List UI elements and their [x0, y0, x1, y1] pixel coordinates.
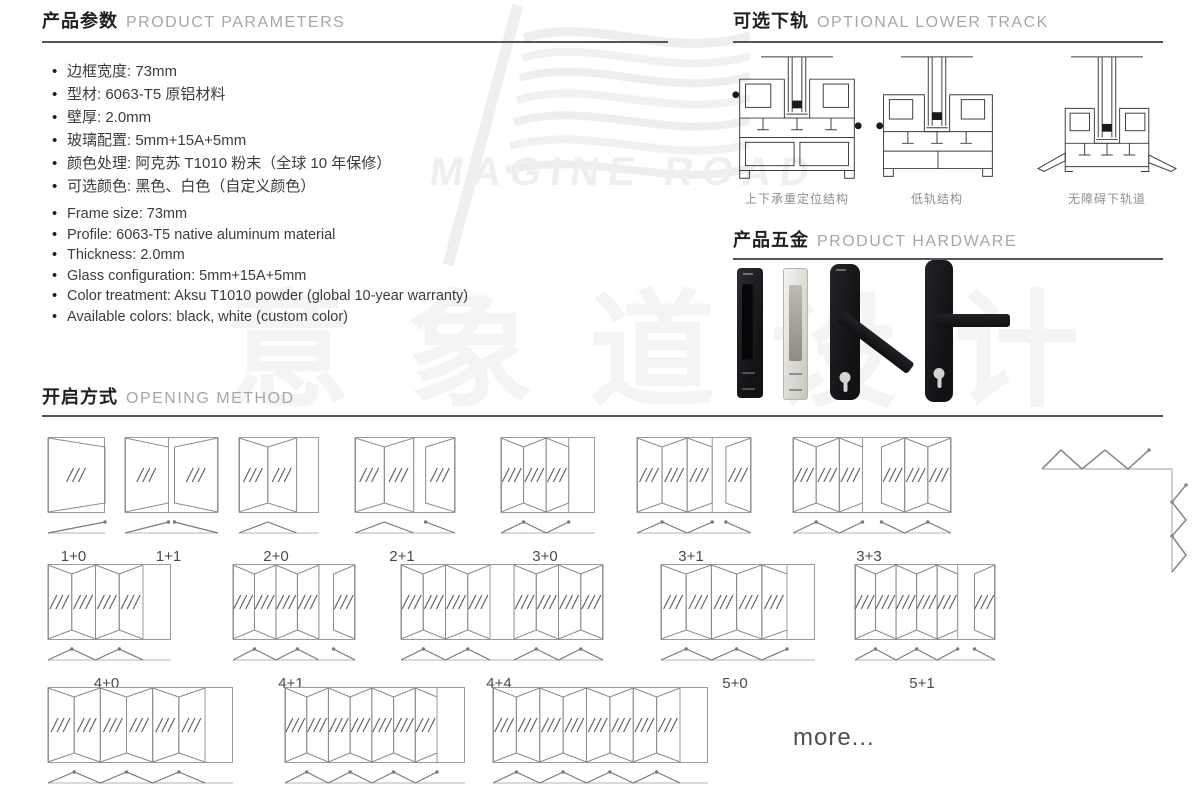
- handle-plate: [925, 260, 953, 402]
- fold-config-figure: 4+4: [398, 564, 600, 692]
- handle-detail-line: [789, 389, 802, 391]
- fold-config-diagram: [122, 437, 221, 541]
- rule-opening: [42, 415, 1163, 417]
- lower-track-title-en: OPTIONAL LOWER TRACK: [817, 14, 1049, 31]
- flush-pull-handle-silver: [783, 268, 808, 400]
- fold-config-figure: 2+1: [352, 437, 452, 565]
- spec-item-cn: 壁厚: 2.0mm: [52, 106, 391, 129]
- fold-config-label: 3+0: [498, 548, 592, 565]
- spec-item-en: Frame size: 73mm: [52, 204, 468, 225]
- track-diagram-low-track: [864, 52, 1010, 188]
- fold-config-diagram: [352, 437, 458, 541]
- fold-config-figure: 1+0: [45, 437, 102, 565]
- track-label: 低轨结构: [862, 190, 1012, 207]
- spec-item-cn: 可选颜色: 黑色、白色（自定义颜色）: [52, 175, 391, 198]
- spec-item-cn: 玻璃配置: 5mm+15A+5mm: [52, 129, 391, 152]
- rule-lower-track: [733, 41, 1163, 43]
- fold-config-diagram: [658, 564, 818, 668]
- fold-config-diagram: [282, 687, 468, 791]
- fold-config-diagram: [852, 564, 998, 668]
- track-figure: 无障碍下轨道: [1032, 52, 1182, 207]
- fold-config-figure: 4+0: [45, 564, 168, 692]
- fold-config-figure: 3+3: [790, 437, 948, 565]
- section-heading-lower-track: 可选下轨OPTIONAL LOWER TRACK: [733, 7, 1049, 33]
- fold-config-diagram: [634, 437, 754, 541]
- parameters-title-cn: 产品参数: [42, 11, 118, 31]
- lower-track-title-cn: 可选下轨: [733, 11, 809, 31]
- spec-item-cn: 型材: 6063-T5 原铝材料: [52, 83, 391, 106]
- track-label: 无障碍下轨道: [1032, 190, 1182, 207]
- spec-list-cn: 边框宽度: 73mm型材: 6063-T5 原铝材料壁厚: 2.0mm玻璃配置:…: [52, 60, 391, 198]
- spec-item-cn: 颜色处理: 阿克苏 T1010 粉末（全球 10 年保修）: [52, 152, 391, 175]
- fold-config-label: 3+1: [634, 548, 748, 565]
- fold-config-figure: 6+0: [45, 687, 230, 800]
- fold-config-figure: 5+1: [852, 564, 992, 692]
- fold-config-label: 1+1: [122, 548, 215, 565]
- handle-brand-mark: [836, 269, 846, 271]
- handle-groove: [789, 285, 802, 361]
- spec-item-en: Available colors: black, white (custom c…: [52, 307, 468, 328]
- handle-detail-line: [742, 388, 755, 390]
- parameters-title-en: PRODUCT PARAMETERS: [126, 14, 345, 31]
- hardware-title-en: PRODUCT HARDWARE: [817, 233, 1017, 250]
- fold-config-diagram: [236, 437, 322, 541]
- fold-config-figure: 3+0: [498, 437, 592, 565]
- rule-parameters: [42, 41, 668, 43]
- hardware-title-cn: 产品五金: [733, 230, 809, 250]
- section-heading-hardware: 产品五金PRODUCT HARDWARE: [733, 226, 1017, 252]
- fold-config-diagram: [45, 437, 108, 541]
- fold-config-diagram: [790, 437, 954, 541]
- spec-item-en: Profile: 6063-T5 native aluminum materia…: [52, 225, 468, 246]
- track-figure: 上下承重定位结构: [722, 52, 872, 207]
- fold-config-label: 2+0: [236, 548, 316, 565]
- fold-config-label: 5+1: [852, 675, 992, 692]
- fold-config-diagram: [45, 687, 236, 791]
- spec-item-en: Color treatment: Aksu T1010 powder (glob…: [52, 286, 468, 307]
- fold-config-figure: 7+0: [282, 687, 462, 800]
- hardware-figure: [733, 258, 1023, 404]
- fold-config-figure: 1+1: [122, 437, 215, 565]
- keyhole: [840, 372, 851, 383]
- opening-title-cn: 开启方式: [42, 387, 118, 407]
- fold-config-diagram: [45, 564, 174, 668]
- handle-groove: [742, 284, 755, 360]
- fold-config-diagram: [398, 564, 606, 668]
- track-diagram-load-bearing: [724, 52, 870, 188]
- lever-bar: [936, 314, 1010, 327]
- track-diagram-barrier-free: [1034, 52, 1180, 188]
- section-heading-opening: 开启方式OPENING METHOD: [42, 383, 295, 409]
- track-label: 上下承重定位结构: [722, 190, 872, 207]
- catalog-page: MAGINE ROAD 意象道设计 产品参数PRODUCT PARAMETERS…: [0, 0, 1200, 800]
- spec-item-en: Thickness: 2.0mm: [52, 245, 468, 266]
- more-label: more...: [793, 724, 875, 752]
- handle-detail-line: [742, 372, 755, 374]
- section-heading-parameters: 产品参数PRODUCT PARAMETERS: [42, 7, 345, 33]
- lever-handle-flat-black: [925, 258, 1035, 404]
- track-figure: 低轨结构: [862, 52, 1012, 207]
- spec-item-cn: 边框宽度: 73mm: [52, 60, 391, 83]
- opening-title-en: OPENING METHOD: [126, 390, 295, 407]
- handle-detail-line: [789, 373, 802, 375]
- fold-config-figure: 2+0: [236, 437, 316, 565]
- fold-config-label: 3+3: [790, 548, 948, 565]
- fold-config-diagram: [230, 564, 358, 668]
- fold-config-figure: 4+1: [230, 564, 352, 692]
- fold-config-label: 2+1: [352, 548, 452, 565]
- fold-config-figure: 3+1: [634, 437, 748, 565]
- keyhole: [934, 368, 945, 379]
- fold-config-figure: 5+0: [658, 564, 812, 692]
- spec-item-en: Glass configuration: 5mm+15A+5mm: [52, 266, 468, 287]
- fold-config-label: 1+0: [45, 548, 102, 565]
- flush-pull-handle-black: [737, 268, 763, 398]
- corner-configuration-diagram: [1032, 437, 1192, 577]
- fold-config-figure: 8+0: [490, 687, 705, 800]
- handle-brand-mark: [743, 273, 753, 275]
- spec-list-en: Frame size: 73mmProfile: 6063-T5 native …: [52, 204, 468, 327]
- fold-config-diagram: [490, 687, 711, 791]
- fold-config-diagram: [498, 437, 598, 541]
